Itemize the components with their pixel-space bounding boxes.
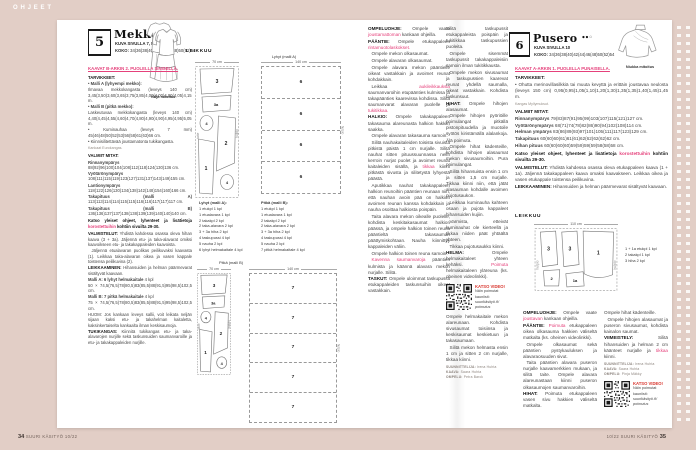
cut-list-model-a: Lyhyt (malli A): 1 etukpl 1 kpl1 etualav… bbox=[199, 200, 257, 253]
cutting-layout-blouse: 110 cm 3 3 1 2 1a hulpio hulpio bbox=[534, 222, 618, 296]
instruction-paragraph: HELMA: Ompele helmakaitaleet yhteen kehä… bbox=[446, 250, 508, 280]
section-label: OHJEET bbox=[13, 5, 54, 11]
instruction-paragraph: Ilmavaa mekkokangasta (leveys 140 cm) 3,… bbox=[88, 87, 192, 103]
instruction-paragraph: Ompele hihojen alasaumat ja puseron sivu… bbox=[604, 317, 668, 335]
instruction-paragraph: PÄÄNTIE: Ompele etukappaleen rintamuotol… bbox=[368, 39, 450, 51]
blouse-column-instructions-2: Ompele hihat kädenteille. Ompele hihojen… bbox=[604, 310, 668, 411]
cut-piece-item: 3 hiha 2 kpl bbox=[625, 258, 673, 264]
instruction-paragraph: Ompele olkasaumat sekä pääntien pystykau… bbox=[523, 342, 597, 360]
magazine-spread: 5 Mekko ●●○ KUVA SIVULLA 7, 8 JA 9 KOKO:… bbox=[57, 20, 672, 428]
selvage-edge-label: hulpio bbox=[227, 320, 231, 329]
fabric-width-label: 140 cm bbox=[261, 60, 341, 65]
video-box-dress: KATSO VIDEO! Näin poimutat kauniisti: su… bbox=[446, 284, 508, 311]
instruction-paragraph: VALMIIT MITAT: bbox=[88, 153, 192, 158]
blouse-photo-reference: KUVA SIVULLA 10 bbox=[534, 45, 570, 50]
blouse-column-intro: KAAVAT A-ARKIN 1. PUOLELLA PUNAISELLA. T… bbox=[515, 66, 668, 190]
piece-label: 3 bbox=[216, 79, 219, 85]
fabric-width-label: 70 cm bbox=[197, 267, 231, 272]
instruction-paragraph: OMPELUOHJE: Ompele vaate joustamattoman … bbox=[368, 26, 450, 38]
instruction-paragraph: Taita alavara mekon oikealle puolelle, k… bbox=[368, 214, 450, 250]
blouse-illustration bbox=[615, 23, 665, 63]
hem-strip-piece: 7 bbox=[250, 304, 336, 334]
instruction-paragraph: LEIKKAAMINEN: Hihansuiden ja helman päär… bbox=[88, 265, 192, 276]
credit-line: OMPELU: Petra Barck bbox=[446, 375, 508, 380]
instruction-paragraph: Ompele alavaran takasauma samoin. bbox=[368, 133, 450, 139]
instruction-paragraph: • Malli B (pitkä mekko): bbox=[88, 104, 192, 109]
hem-strip-piece: 6 bbox=[262, 131, 340, 163]
instruction-paragraph: Takapituus (malli B) 136(136)137(137)138… bbox=[88, 206, 192, 217]
instruction-paragraph: Silitä taskupussit etukappaleista poispä… bbox=[446, 26, 508, 50]
instruction-paragraph: Kavenna saumanvaroja pääntien kulmista j… bbox=[368, 257, 450, 275]
piece-label: 3 bbox=[547, 246, 550, 252]
selvage-edge-label: hulpio bbox=[535, 260, 539, 269]
selvage-edge-label: hulpio bbox=[340, 126, 344, 135]
layout-caption-short: Lyhyt (malli A) bbox=[227, 54, 341, 59]
hem-strip-piece: 7 bbox=[250, 363, 336, 393]
instruction-paragraph: 75 × 74,5(76,5)78(80,5)83(85,5)88(91,5)9… bbox=[88, 300, 192, 311]
fabric-width-label: 70 cm bbox=[195, 60, 239, 65]
piece-label: 3 bbox=[213, 283, 216, 288]
instruction-paragraph: Vyötärönympärys 108(111)115(119)123(127)… bbox=[88, 171, 192, 182]
video-link[interactable]: poimutus bbox=[633, 402, 663, 407]
pattern-number-badge-6: 6 bbox=[509, 32, 530, 57]
pattern-number-badge-5: 5 bbox=[88, 29, 111, 56]
piece-label: 1 bbox=[205, 166, 208, 172]
instruction-paragraph: Jäljennä etualavaran puolikas peilikuvak… bbox=[88, 248, 192, 264]
piece-label: 1 bbox=[204, 350, 207, 355]
instruction-paragraph: TASKUT: Ompele uloimmat taskupussit etuk… bbox=[368, 276, 450, 294]
instruction-paragraph: Ompele helmakaitale mekon alareunaan. Ko… bbox=[446, 314, 508, 344]
instruction-paragraph: • Kiinnisilitettävää joustamatonta tukik… bbox=[88, 139, 192, 144]
instruction-paragraph: OMPELUOHJE: Ompele vaate joustavan kanka… bbox=[523, 310, 597, 322]
dress-column-materials: KAAVAT B-ARKIN 2. PUOLELLA SINISELLÄ. TA… bbox=[88, 66, 192, 346]
instruction-paragraph: VALMISTELUT: Yhdistä kahdessa osassa ole… bbox=[88, 231, 192, 247]
instruction-paragraph: Ompele mekon sivusaumat ja taskupussien … bbox=[446, 70, 508, 100]
dress-cutting-heading: LEIKKUU bbox=[186, 49, 212, 54]
instruction-paragraph: Takapituus 60(60)60(61)61(61)62(62)62(62… bbox=[515, 136, 668, 142]
cut-piece-item: 7 pitkä helmakaitale 4 kpl bbox=[261, 247, 325, 253]
fabric-width-label: 110 cm bbox=[534, 222, 618, 227]
instruction-paragraph: HALKIO: Ompele takakappaleen takasauma a… bbox=[368, 114, 450, 132]
instruction-paragraph: Ompele hihat kädenteille. bbox=[604, 310, 668, 316]
instruction-paragraph: HUOM: Jos kankaan leveys sallii, voit le… bbox=[88, 312, 192, 328]
selvage-edge-label: hulpio bbox=[613, 260, 617, 269]
blouse-pattern-sheet-link[interactable]: KAAVAT A-ARKIN 1. PUOLELLA PUNAISELLA. bbox=[515, 66, 668, 72]
piece-label: 1a bbox=[573, 278, 578, 283]
instruction-paragraph: Ompele halkion toinen reuna samoin. bbox=[368, 251, 450, 257]
instruction-paragraph: Takapituus (malli A) 113(113)114(114)115… bbox=[88, 194, 192, 205]
instruction-paragraph: TUKIKANGAS: Kiinnitä tukikangas etu- ja … bbox=[88, 329, 192, 345]
instruction-paragraph: Laskeutuvaa mekkokangasta (leveys 140 cm… bbox=[88, 110, 192, 126]
video-link[interactable]: poimutus bbox=[475, 305, 505, 310]
instruction-paragraph: Leikkaa aukileikkauksia saumanvaroihin e… bbox=[368, 84, 450, 114]
dress-pattern-sheet-link[interactable]: KAAVAT B-ARKIN 2. PUOLELLA SINISELLÄ. bbox=[88, 66, 192, 72]
cutting-diagram-pieces: 3 3 1 2 1a hulpio hulpio bbox=[534, 228, 618, 291]
dress-column-instructions-2: Silitä taskupussit etukappaleista poispä… bbox=[446, 26, 508, 381]
instruction-paragraph: Lantionympärys 118(122)126(130)134(138)1… bbox=[88, 183, 192, 194]
hem-strip-piece: 7 bbox=[250, 334, 336, 364]
instruction-paragraph: Katso yleiset ohjeet, lyhenteet ja lisät… bbox=[515, 151, 668, 163]
instruction-paragraph: LEIKKAAMINEN: Hihansuiden ja helman päär… bbox=[515, 184, 668, 190]
blouse-column-instructions-1: OMPELUOHJE: Ompele vaate joustavan kanka… bbox=[523, 310, 597, 410]
piece-label: 2 bbox=[225, 141, 228, 147]
hem-strip-piece: 6 bbox=[262, 162, 340, 193]
difficulty-dots-filled: ●● bbox=[582, 35, 589, 41]
blouse-cutting-heading: LEIKKUU bbox=[515, 214, 541, 219]
instruction-paragraph: TARVIKKEET: bbox=[515, 75, 668, 81]
credit-line: OMPELU: Pinja Mäkky bbox=[604, 372, 668, 377]
instruction-paragraph: HIHAT: Poimuta etukappaleen vasen sivu h… bbox=[523, 391, 597, 409]
hem-strip-piece: 6 bbox=[262, 67, 340, 99]
cutting-layout-hem-strips-b: 140 cm 77777 hulpio bbox=[249, 267, 337, 423]
selvage-edge-label: hulpio bbox=[235, 129, 239, 138]
cutting-layout-dress-a: 70 cm 3 3a 4 2 1 4 taite hulpio bbox=[195, 60, 239, 203]
hem-strip-piece: 7 bbox=[250, 393, 336, 422]
instruction-paragraph: • Malli A (lyhyempi mekko): bbox=[88, 81, 192, 86]
cutting-layout-dress-b: 70 cm 3 3a 4 2 1 4 taite hulpio bbox=[197, 267, 231, 380]
blouse-size-range: KOKO: 34(36)38(40)42(44)46(48)50(52)54 bbox=[534, 52, 614, 57]
instruction-paragraph: PÄÄNTIE: Poimuta etukappaleen oikea olka… bbox=[523, 323, 597, 341]
instruction-paragraph: Ompele hihojen pyöriöille poimulangat pi… bbox=[446, 113, 508, 143]
instruction-paragraph: Tikkaa pujotusaukko kiinni. bbox=[446, 244, 508, 250]
cutting-diagram-pieces: 3 3a 4 2 1 4 taite hulpio bbox=[197, 273, 231, 375]
instruction-paragraph: Kankaat Eurokangas. bbox=[88, 146, 192, 151]
dress-column-instructions-1: OMPELUOHJE: Ompele vaate joustamattoman … bbox=[368, 26, 450, 295]
piece-label: 2 bbox=[220, 331, 223, 336]
cut-list-model-b: Pitkä (malli B): 1 etukpl 1 kpl1 etualav… bbox=[261, 200, 325, 253]
hem-strip-piece: 6 bbox=[262, 99, 340, 131]
instruction-paragraph: Ompele alavaran olkasaumat. bbox=[368, 58, 450, 64]
cutting-layout-hem-strips-a: 140 cm 6666 hulpio bbox=[261, 60, 341, 194]
instruction-paragraph: TARVIKKEET: bbox=[88, 75, 192, 80]
page-footer-left: 34 SUURI KÄSITYÖ 10/22 bbox=[18, 434, 77, 440]
fold-edge-label: taite bbox=[196, 132, 200, 139]
instruction-paragraph: Aputikkaa nauhat takakappaleen halkion r… bbox=[368, 183, 450, 213]
instruction-paragraph: HIHAT: Ompele hihojen alasaumat. bbox=[446, 101, 508, 113]
instruction-paragraph: Kangas Myllymuksut. bbox=[515, 102, 668, 107]
instruction-paragraph: Helman ympärys 83(86)89(93)97(101)105(11… bbox=[515, 129, 668, 135]
piece-label: 3a bbox=[214, 102, 219, 107]
instruction-paragraph: • Ohutta merinovillasilkkiä tai muuta ke… bbox=[515, 82, 668, 100]
blouse-title: Pusero bbox=[533, 32, 577, 45]
instruction-paragraph: Vyötärönympärys 68(71)74(78)82(86)90(94)… bbox=[515, 123, 668, 129]
instruction-paragraph: Malli B: 7 pitkä helmakaitale 4 kpl bbox=[88, 294, 192, 299]
instruction-paragraph: Katso yleiset ohjeet, lyhenteet ja lisät… bbox=[88, 218, 192, 229]
instruction-paragraph: Silitä hihansuista ensin 1 cm ja sitten … bbox=[446, 169, 508, 199]
instruction-paragraph: • Kuminauhaa (leveys 7 mm) 45(46)48(50)5… bbox=[88, 127, 192, 138]
instruction-paragraph: VIIMEISTELY: Silitä hihansuiden ja helma… bbox=[604, 335, 668, 359]
instruction-paragraph: Ompele alavara mekon pääntielle oikeat v… bbox=[368, 65, 450, 83]
blouse-cut-list: 1 + 1a etukpl 1 kpl2 takakpl 1 kpl3 hiha… bbox=[625, 246, 673, 264]
fabric-width-label: 140 cm bbox=[249, 267, 337, 272]
instruction-paragraph: Taita pääntien alavara puseron nurjalle … bbox=[523, 360, 597, 390]
cut-piece-item: 6 lyhyt helmakaitale 4 kpl bbox=[199, 247, 257, 253]
instruction-paragraph: Ompele mekon olkasaumat. bbox=[368, 51, 450, 57]
fold-edge-label: taite bbox=[197, 323, 201, 329]
qr-code[interactable] bbox=[604, 381, 630, 407]
magazine-issue: 10/22 SUURI KÄSITYÖ bbox=[607, 434, 659, 439]
page-edge-band bbox=[672, 0, 696, 450]
instruction-paragraph: Hihan pituus 60(60)60(60)59(59)59(59)58(… bbox=[515, 143, 668, 149]
piece-label: 3 bbox=[568, 246, 571, 252]
hem-strip-piece: 7 bbox=[250, 274, 336, 304]
video-box-blouse: KATSO VIDEO! Näin poimutat kauniisti: su… bbox=[604, 381, 668, 408]
instruction-paragraph: Rinnanympärys 79(83)87(91)95(99)103(107)… bbox=[515, 116, 668, 122]
page-number: 34 bbox=[18, 434, 24, 440]
instruction-paragraph: Leikkaa kuminauha kahteen osaan ja pujot… bbox=[446, 200, 508, 218]
page-footer-right: 10/22 SUURI KÄSITYÖ 35 bbox=[607, 434, 666, 440]
page-number: 35 bbox=[660, 434, 666, 440]
instruction-paragraph: VALMIIT MITAT: bbox=[515, 109, 668, 115]
qr-code[interactable] bbox=[446, 284, 472, 310]
instruction-paragraph: Varmista, etteivät kuminauhat ole kierte… bbox=[446, 219, 508, 243]
instruction-paragraph: Silitä mekon helmasta ensin 1 cm ja sitt… bbox=[446, 345, 508, 363]
instruction-paragraph: Ompele hihat kädenteille, kohdista hihoj… bbox=[446, 144, 508, 168]
cutting-diagram-pieces: 3 3a 4 2 1 4 taite hulpio bbox=[195, 66, 239, 198]
layout-caption-long: Pitkä (malli B) bbox=[195, 260, 267, 265]
magazine-issue: SUURI KÄSITYÖ 10/22 bbox=[26, 434, 78, 439]
instruction-paragraph: VALMISTELUT: Yhdistä kahdessa osassa ole… bbox=[515, 165, 668, 183]
instruction-paragraph: Rinnanympärys 88(92)96(100)104(108)112(1… bbox=[88, 160, 192, 171]
piece-label: 1 bbox=[597, 250, 600, 256]
instruction-paragraph: Malli A: 6 lyhyt helmakaitale 4 kpl bbox=[88, 277, 192, 282]
selvage-edge-label: hulpio bbox=[336, 344, 340, 353]
instruction-paragraph: Ompele sisemmät taskupussit takakappalei… bbox=[446, 51, 508, 69]
difficulty-dot-open: ○ bbox=[589, 35, 593, 41]
instruction-paragraph: 50 × 74,5(76,5)78(80,5)83(85,5)88(91,5)9… bbox=[88, 283, 192, 294]
instruction-paragraph: Silitä nauhakaitaleiden toisista sivuist… bbox=[368, 140, 450, 182]
